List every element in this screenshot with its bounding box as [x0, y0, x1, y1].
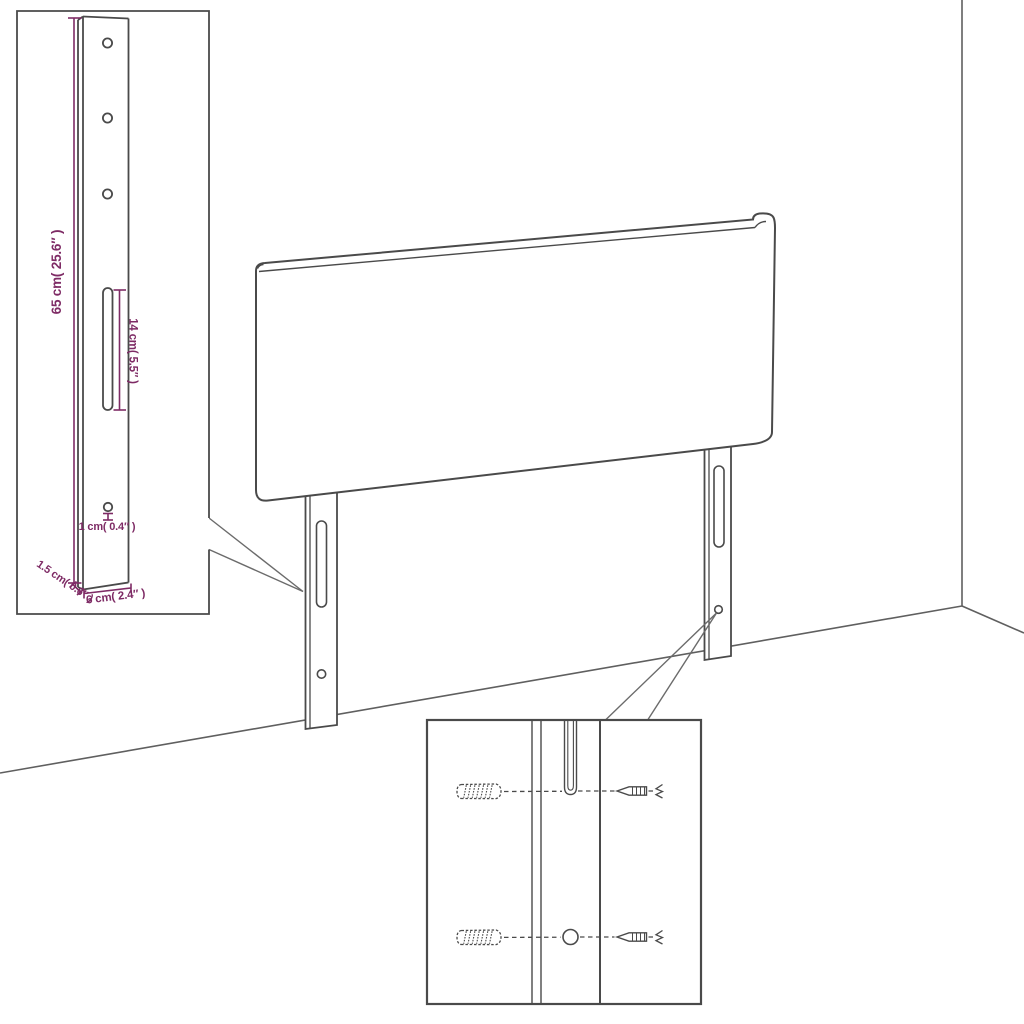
assembly-diagram-page: 65 cm( 25.6″ ) 14 cm( 5.5″ ) 1 cm( 0.4″ …	[0, 0, 1024, 1024]
callout-left-inset-upper	[209, 518, 303, 592]
headboard-assembly-diagram: 65 cm( 25.6″ ) 14 cm( 5.5″ ) 1 cm( 0.4″ …	[0, 0, 1024, 1024]
headboard	[256, 213, 775, 500]
left-leg-hole	[317, 670, 325, 678]
dim-label-leg-height: 65 cm( 25.6″ )	[49, 230, 64, 315]
dim-label-slot-length: 14 cm( 5.5″ )	[127, 318, 139, 384]
right-leg-hole	[715, 606, 723, 614]
left-leg-slot	[317, 521, 327, 607]
callout-left-inset-lower	[209, 550, 303, 592]
floor-line-right	[962, 606, 1024, 633]
detail-inset-leg: 65 cm( 25.6″ ) 14 cm( 5.5″ ) 1 cm( 0.4″ …	[17, 11, 209, 614]
dim-label-hole-size: 1 cm( 0.4″ )	[79, 521, 136, 533]
callout-lines	[209, 518, 717, 720]
callout-bottom-inset-left	[606, 613, 717, 720]
detail-inset-mounting	[427, 720, 701, 1004]
left-leg	[306, 466, 338, 729]
callout-bottom-inset-right	[648, 613, 717, 720]
headboard-outline	[256, 213, 775, 500]
right-leg-slot	[714, 466, 724, 547]
